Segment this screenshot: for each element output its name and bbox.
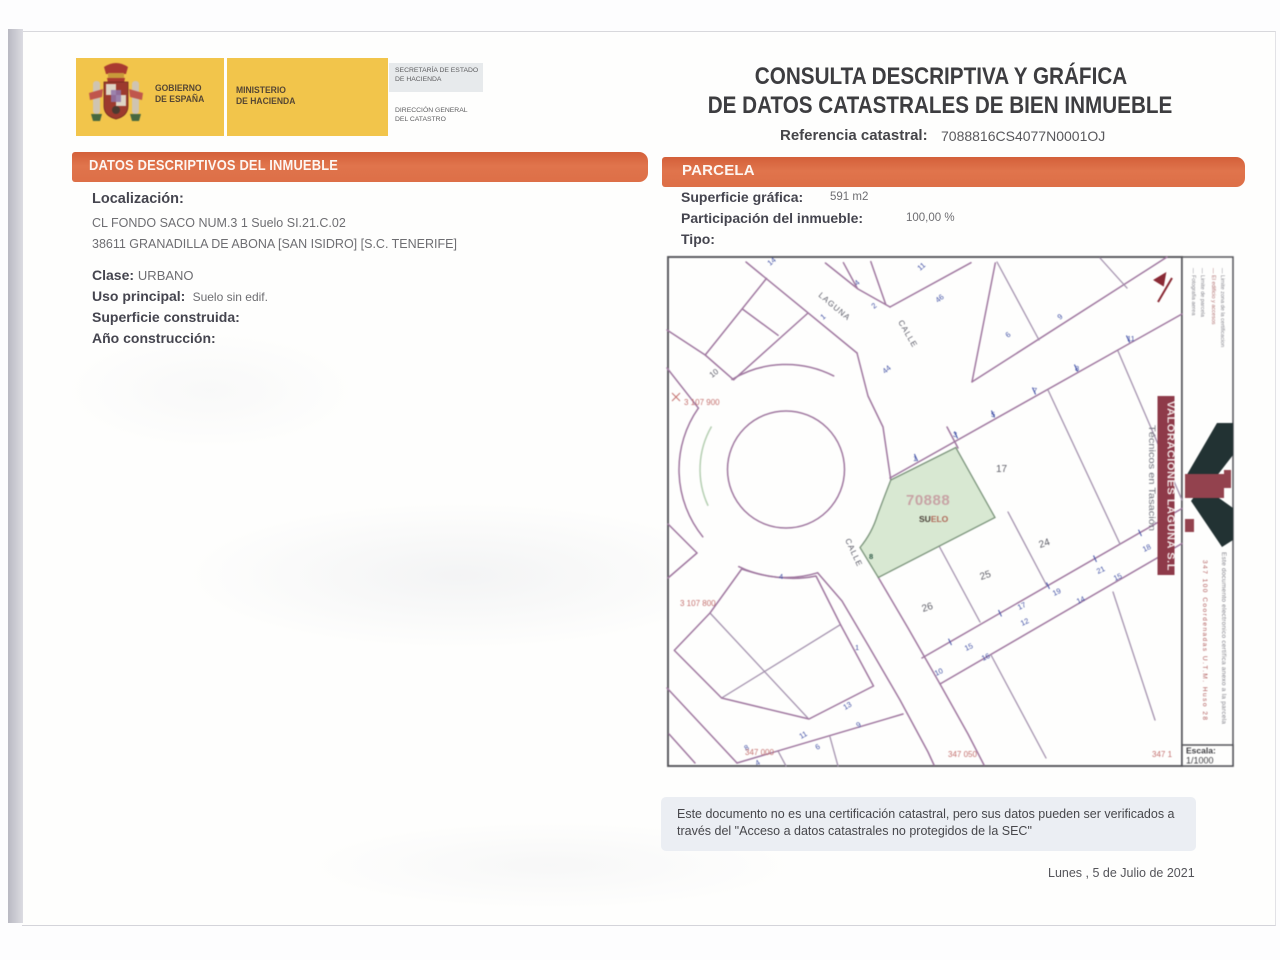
svg-text:Escala:: Escala:: [1186, 746, 1216, 756]
svg-text:VALORACIONES LAGUNA S.L: VALORACIONES LAGUNA S.L: [1165, 401, 1176, 571]
svg-text:11: 11: [1127, 334, 1135, 343]
svg-text:1/1000: 1/1000: [1186, 756, 1214, 766]
svg-text:347 100 Coordenadas U.T.M. Hus: 347 100 Coordenadas U.T.M. Huso 28: [1201, 560, 1208, 720]
svg-text:— Limite de parcela: — Limite de parcela: [1199, 268, 1205, 318]
svg-text:— El edificio y accesos: — El edificio y accesos: [1210, 268, 1216, 325]
svg-text:3 107 800: 3 107 800: [680, 599, 716, 608]
svg-text:3 107 900: 3 107 900: [684, 398, 720, 407]
svg-text:347 000: 347 000: [745, 748, 774, 757]
svg-text:Este documento electronico cer: Este documento electronico certifica ane…: [1220, 552, 1227, 724]
svg-text:347 050: 347 050: [948, 750, 977, 759]
svg-text:3: 3: [953, 430, 957, 439]
svg-text:8: 8: [1075, 364, 1079, 373]
svg-text:— Limite zona de la certificac: — Limite zona de la certificacion: [1219, 268, 1225, 347]
svg-text:Técnicos en Tasación: Técnicos en Tasación: [1147, 425, 1157, 531]
svg-text:347 1: 347 1: [1152, 750, 1173, 759]
svg-text:5: 5: [991, 410, 995, 419]
svg-text:1: 1: [855, 643, 859, 652]
svg-text:— Fotografia aerea: — Fotografia aerea: [1190, 268, 1196, 316]
svg-text:7: 7: [1033, 386, 1037, 395]
svg-text:1: 1: [913, 454, 917, 463]
svg-text:70888: 70888: [906, 492, 950, 509]
svg-text:17: 17: [996, 464, 1008, 475]
svg-text:4: 4: [779, 572, 783, 581]
svg-text:SUELO: SUELO: [919, 514, 949, 524]
svg-text:8: 8: [869, 552, 873, 561]
